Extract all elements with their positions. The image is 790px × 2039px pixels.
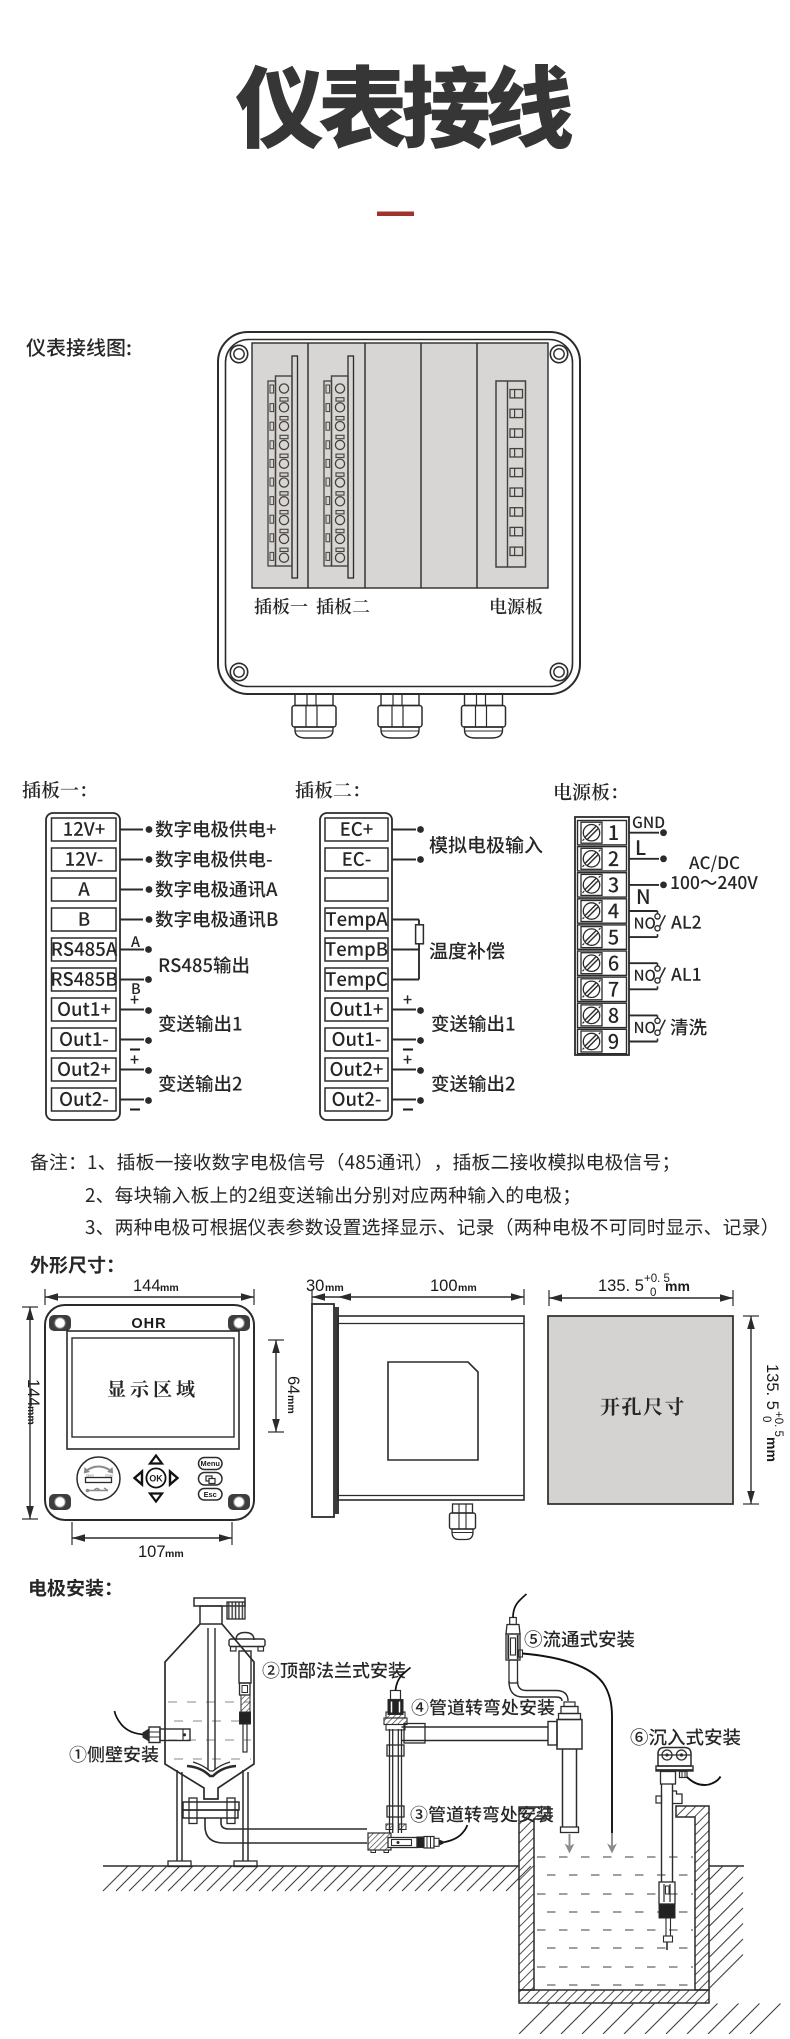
svg-text:mm: mm — [165, 1548, 184, 1560]
svg-text:mm: mm — [665, 1278, 690, 1294]
svg-text:135. 5: 135. 5 — [763, 1364, 781, 1410]
svg-text:30: 30 — [306, 1277, 324, 1295]
svg-text:107: 107 — [138, 1543, 166, 1561]
svg-text:mm: mm — [458, 1282, 477, 1294]
svg-text:Menu: Menu — [201, 1459, 221, 1468]
svg-text:mm: mm — [25, 1406, 37, 1425]
svg-text:144: 144 — [24, 1379, 42, 1407]
svg-text:135. 5: 135. 5 — [598, 1277, 644, 1295]
svg-text:OK: OK — [149, 1473, 163, 1483]
svg-text:0: 0 — [650, 1287, 656, 1299]
svg-text:mm: mm — [160, 1282, 179, 1294]
svg-text:mm: mm — [325, 1282, 344, 1294]
svg-text:mm: mm — [764, 1437, 780, 1462]
svg-text:mm: mm — [285, 1395, 297, 1414]
svg-text:OHR: OHR — [131, 1316, 166, 1332]
svg-text:64: 64 — [284, 1376, 302, 1394]
svg-text:0: 0 — [760, 1416, 772, 1422]
svg-text:Esc: Esc — [204, 1490, 217, 1499]
svg-text:100: 100 — [430, 1277, 458, 1295]
svg-text:144: 144 — [133, 1277, 161, 1295]
svg-text:+0. 5: +0. 5 — [772, 1411, 784, 1437]
